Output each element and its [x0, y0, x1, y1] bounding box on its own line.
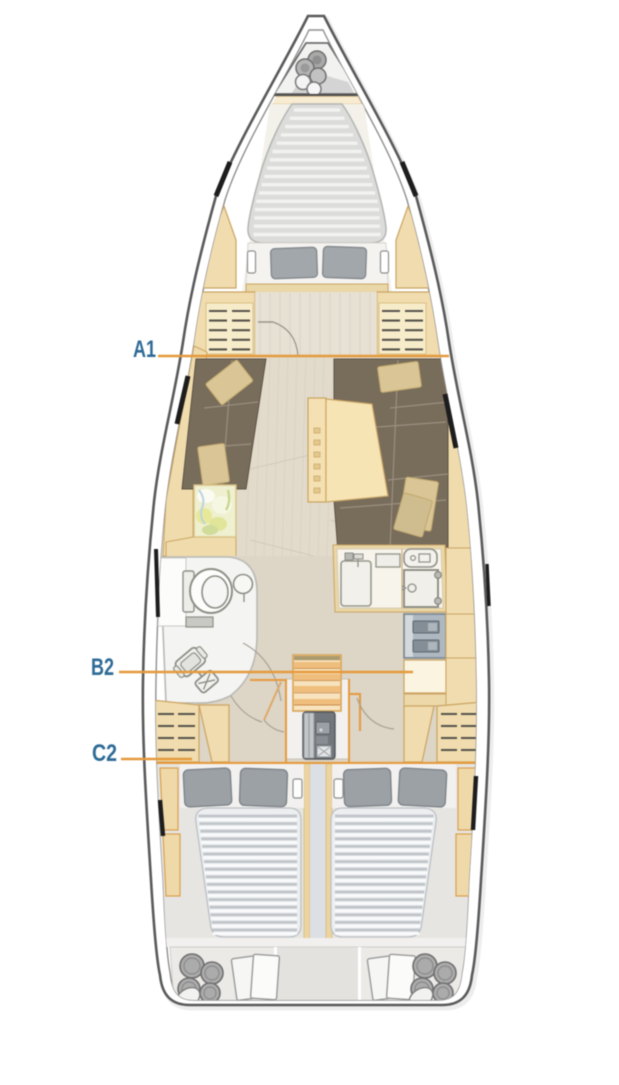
svg-text:B2: B2 [91, 654, 114, 681]
svg-text:A1: A1 [133, 336, 156, 363]
svg-text:C2: C2 [92, 740, 117, 767]
